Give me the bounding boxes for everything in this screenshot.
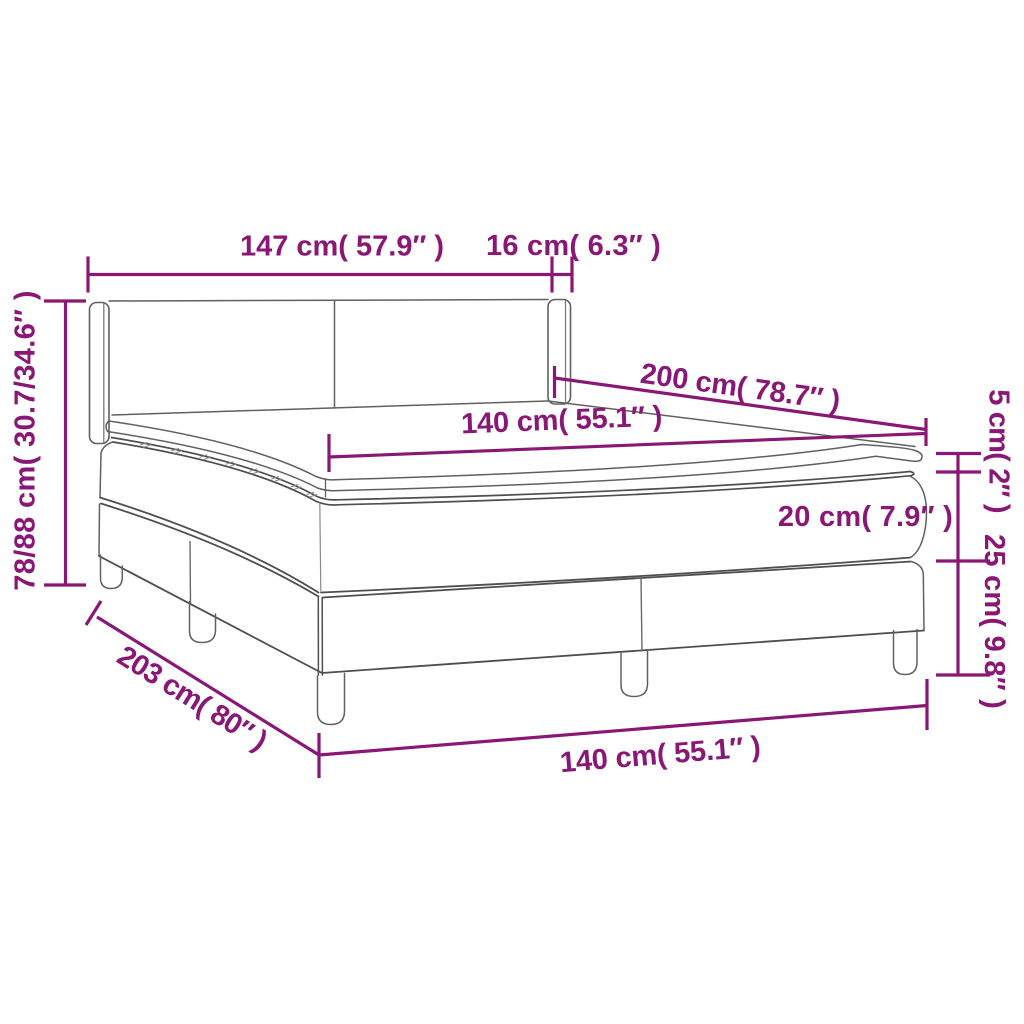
svg-text:78/88 cm( 30.7/34.6″ ): 78/88 cm( 30.7/34.6″ )	[10, 290, 42, 591]
svg-text:20 cm( 7.9″ ): 20 cm( 7.9″ )	[778, 501, 953, 533]
svg-text:5 cm( 2″ ): 5 cm( 2″ )	[983, 389, 1015, 513]
svg-text:147 cm( 57.9″ ): 147 cm( 57.9″ )	[240, 231, 444, 263]
svg-text:16 cm( 6.3″ ): 16 cm( 6.3″ )	[486, 230, 661, 262]
svg-text:25 cm( 9.8″ ): 25 cm( 9.8″ )	[978, 534, 1010, 709]
